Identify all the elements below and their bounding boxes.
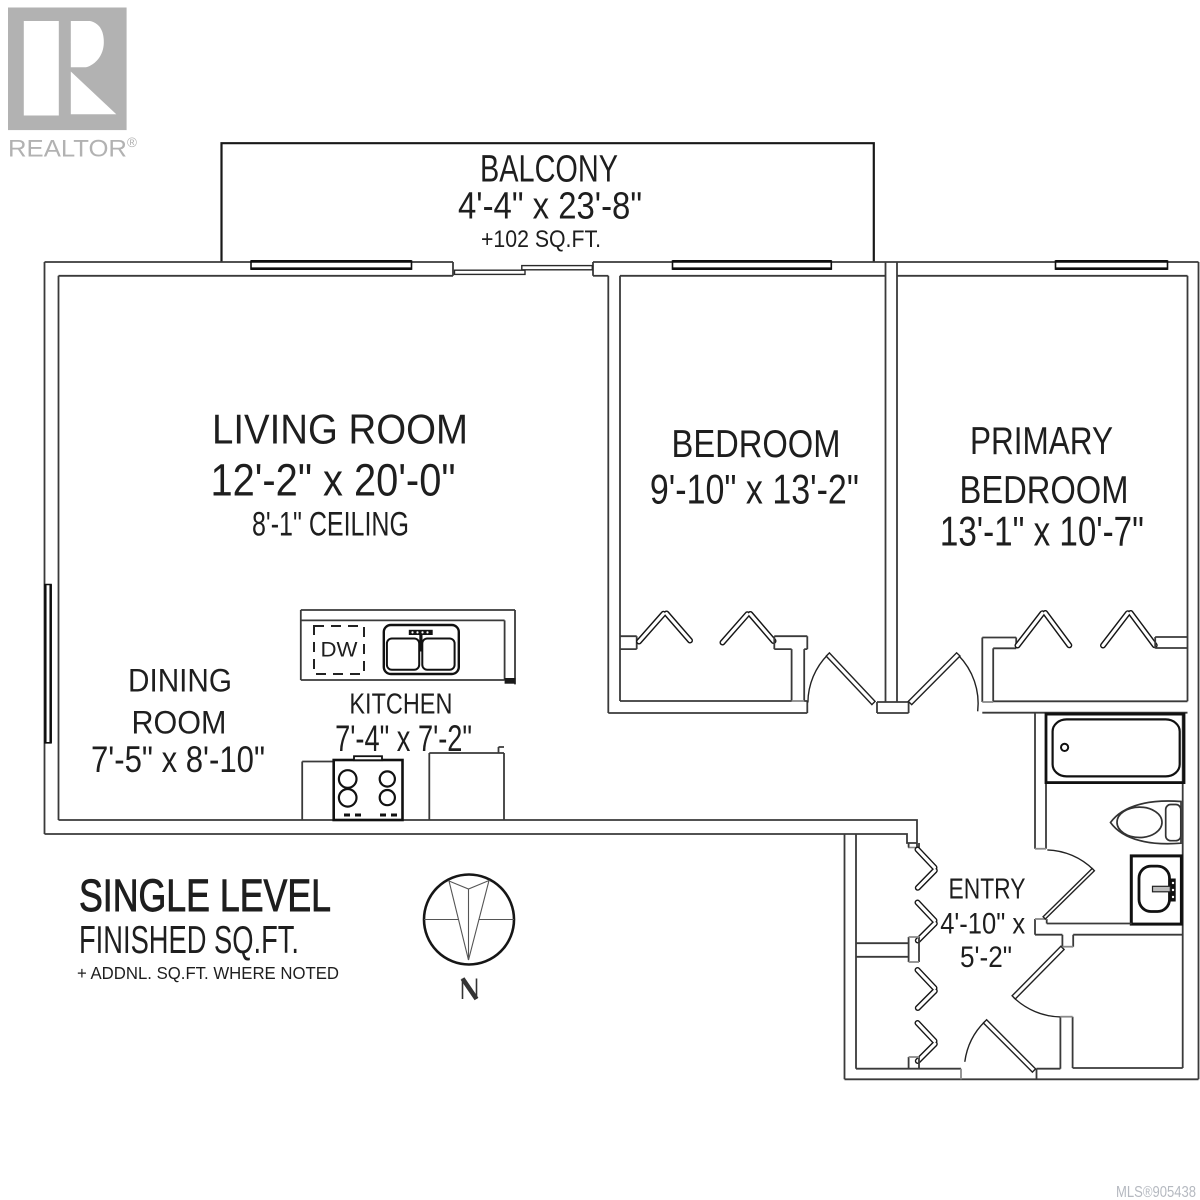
svg-text:SINGLE LEVEL: SINGLE LEVEL xyxy=(79,870,331,921)
svg-text:4'-4" x 23'-8": 4'-4" x 23'-8" xyxy=(458,186,642,228)
svg-text:+ ADDNL. SQ.FT. WHERE NOTED: + ADDNL. SQ.FT. WHERE NOTED xyxy=(77,963,339,983)
svg-text:PRIMARY: PRIMARY xyxy=(970,420,1113,463)
svg-text:DW: DW xyxy=(321,639,358,662)
svg-text:12'-2" x 20'-0": 12'-2" x 20'-0" xyxy=(211,454,456,505)
svg-text:ROOM: ROOM xyxy=(132,705,227,741)
svg-text:BEDROOM: BEDROOM xyxy=(672,423,841,466)
svg-text:LIVING ROOM: LIVING ROOM xyxy=(212,405,468,452)
svg-text:REALTOR: REALTOR xyxy=(8,136,127,163)
svg-text:MLS®905438: MLS®905438 xyxy=(1116,1184,1196,1200)
svg-text:8'-1" CEILING: 8'-1" CEILING xyxy=(252,505,409,543)
svg-text:BALCONY: BALCONY xyxy=(480,149,618,191)
svg-text:+102 SQ.FT.: +102 SQ.FT. xyxy=(481,226,601,253)
svg-text:BEDROOM: BEDROOM xyxy=(960,469,1129,512)
svg-text:KITCHEN: KITCHEN xyxy=(349,689,452,721)
svg-text:9'-10" x 13'-2": 9'-10" x 13'-2" xyxy=(650,466,859,513)
svg-text:4'-10" x: 4'-10" x xyxy=(940,908,1025,941)
svg-text:®: ® xyxy=(127,135,137,150)
svg-text:5'-2": 5'-2" xyxy=(960,941,1012,974)
svg-text:DINING: DINING xyxy=(128,662,232,698)
svg-text:ENTRY: ENTRY xyxy=(949,873,1026,905)
svg-text:7'-5" x 8'-10": 7'-5" x 8'-10" xyxy=(91,738,265,780)
svg-text:FINISHED SQ.FT.: FINISHED SQ.FT. xyxy=(79,919,299,962)
svg-text:13'-1" x 10'-7": 13'-1" x 10'-7" xyxy=(940,507,1144,554)
